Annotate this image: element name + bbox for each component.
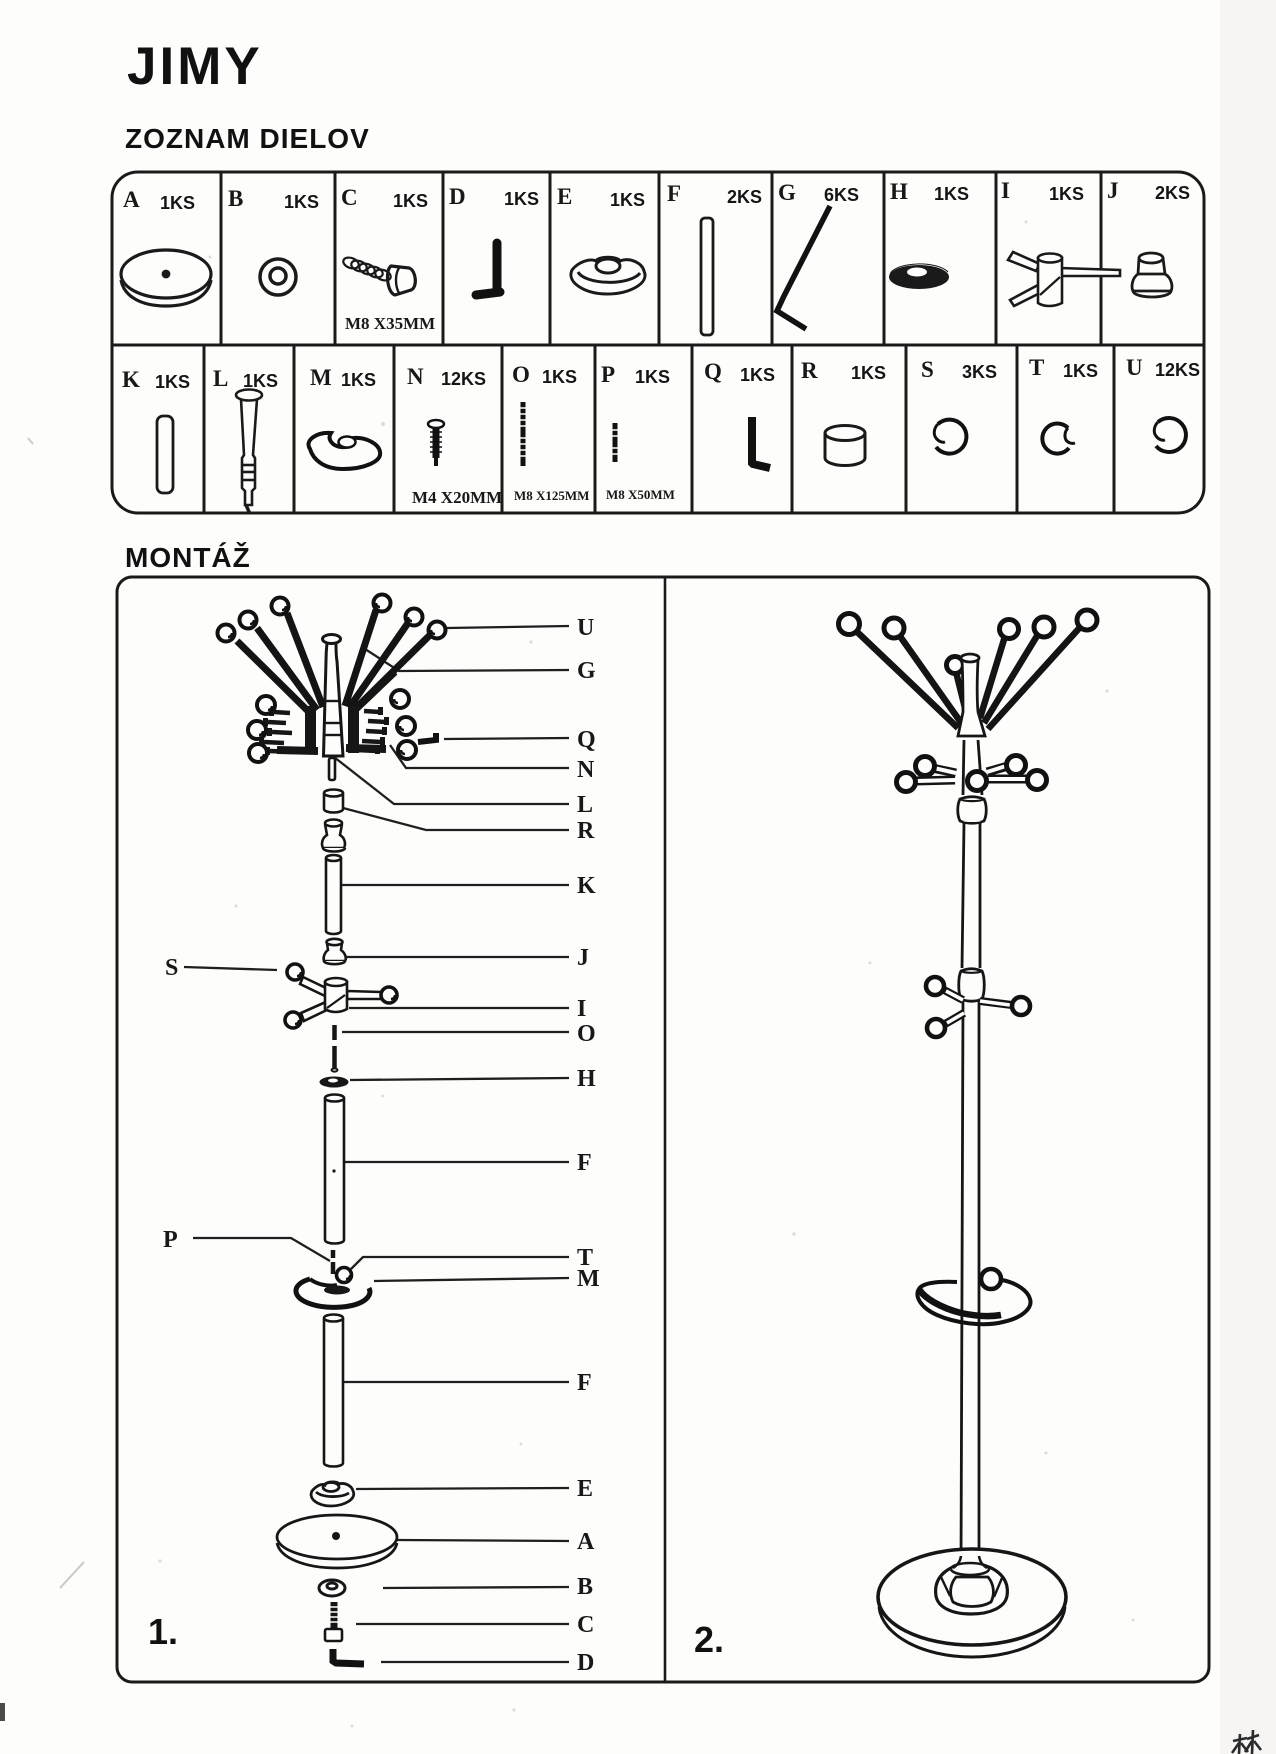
svg-text:2.: 2. [694, 1619, 724, 1660]
svg-text:1KS: 1KS [934, 184, 969, 204]
svg-text:C: C [341, 185, 358, 210]
svg-text:T: T [1029, 355, 1044, 380]
svg-text:Q: Q [704, 359, 722, 384]
svg-text:F: F [667, 181, 681, 206]
svg-text:H: H [890, 179, 908, 204]
svg-text:1KS: 1KS [160, 193, 195, 213]
svg-text:F: F [577, 1150, 592, 1176]
svg-text:C: C [577, 1612, 594, 1638]
svg-text:P: P [163, 1227, 178, 1253]
svg-text:Q: Q [577, 727, 596, 753]
svg-text:M: M [577, 1266, 600, 1292]
svg-text:MONTÁŽ: MONTÁŽ [125, 542, 251, 573]
svg-text:12KS: 12KS [441, 369, 486, 389]
svg-text:L: L [213, 366, 228, 391]
svg-text:E: E [557, 184, 572, 209]
svg-text:3KS: 3KS [962, 362, 997, 382]
svg-text:K: K [122, 367, 140, 392]
svg-text:G: G [778, 180, 796, 205]
svg-text:M: M [310, 365, 332, 390]
svg-text:I: I [1001, 178, 1010, 203]
svg-text:S: S [921, 357, 934, 382]
svg-text:JIMY: JIMY [127, 37, 263, 96]
svg-text:12KS: 12KS [1155, 360, 1200, 380]
svg-text:N: N [577, 757, 595, 783]
svg-text:K: K [577, 873, 596, 899]
svg-text:1KS: 1KS [1063, 361, 1098, 381]
svg-text:F: F [577, 1370, 592, 1396]
svg-text:1KS: 1KS [610, 190, 645, 210]
svg-text:G: G [577, 658, 596, 684]
svg-text:1KS: 1KS [542, 367, 577, 387]
svg-text:M4 X20MM: M4 X20MM [412, 488, 502, 507]
svg-text:A: A [577, 1529, 595, 1555]
svg-text:1KS: 1KS [504, 189, 539, 209]
svg-text:H: H [577, 1066, 596, 1092]
svg-text:1KS: 1KS [635, 367, 670, 387]
svg-text:D: D [449, 184, 466, 209]
svg-text:U: U [1126, 355, 1143, 380]
svg-text:1.: 1. [148, 1611, 178, 1652]
svg-text:1KS: 1KS [1049, 184, 1084, 204]
svg-text:1KS: 1KS [155, 372, 190, 392]
svg-text:J: J [1107, 178, 1119, 203]
svg-text:D: D [577, 1650, 594, 1676]
svg-text:6KS: 6KS [824, 185, 859, 205]
svg-text:O: O [512, 362, 530, 387]
svg-text:B: B [577, 1574, 593, 1600]
svg-text:2KS: 2KS [727, 187, 762, 207]
svg-text:L: L [577, 792, 593, 818]
svg-text:J: J [577, 945, 589, 971]
svg-text:I: I [577, 996, 586, 1022]
svg-text:M8 X35MM: M8 X35MM [345, 314, 435, 333]
svg-text:R: R [577, 818, 595, 844]
svg-text:R: R [801, 358, 818, 383]
svg-text:A: A [123, 187, 140, 212]
svg-text:B: B [228, 186, 243, 211]
svg-text:1KS: 1KS [341, 370, 376, 390]
svg-text:2KS: 2KS [1155, 183, 1190, 203]
svg-text:O: O [577, 1021, 596, 1047]
svg-text:1KS: 1KS [740, 365, 775, 385]
svg-text:N: N [407, 364, 424, 389]
svg-text:ZOZNAM DIELOV: ZOZNAM DIELOV [125, 123, 370, 154]
svg-text:1KS: 1KS [284, 192, 319, 212]
svg-text:S: S [165, 955, 178, 981]
svg-text:1KS: 1KS [393, 191, 428, 211]
svg-text:M8 X125MM: M8 X125MM [514, 488, 589, 503]
svg-text:E: E [577, 1476, 593, 1502]
svg-text:1KS: 1KS [243, 371, 278, 391]
svg-text:P: P [601, 362, 615, 387]
svg-text:1KS: 1KS [851, 363, 886, 383]
svg-text:U: U [577, 615, 594, 641]
svg-text:M8 X50MM: M8 X50MM [606, 487, 675, 502]
